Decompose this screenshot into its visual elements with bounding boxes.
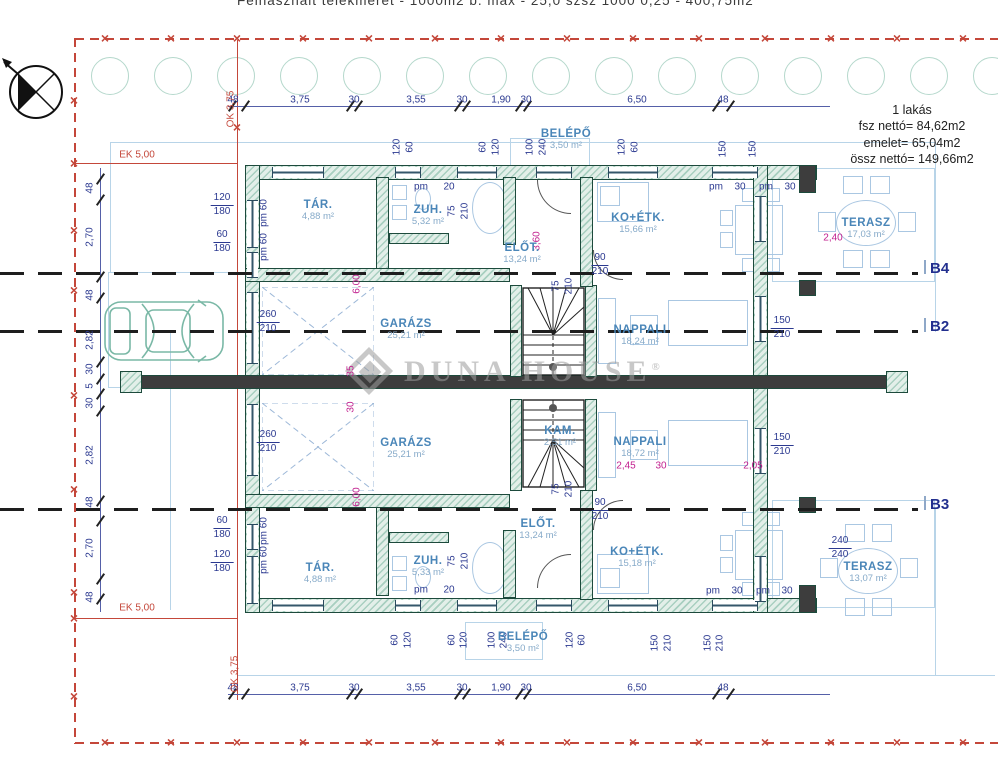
- window: [395, 167, 421, 178]
- boundary-x-mark: ×: [70, 688, 78, 704]
- annotation: 60: [447, 634, 458, 645]
- watermark-brand: Duna House®: [404, 355, 665, 389]
- annotation: 60: [390, 634, 401, 645]
- annotation: 120: [459, 632, 470, 649]
- annotation: pm 60: [259, 199, 270, 227]
- site-boundary-line: [110, 142, 111, 272]
- annotation: pm 60: [259, 233, 270, 261]
- dim-label: 30: [348, 683, 359, 694]
- wall-segment: [799, 165, 816, 193]
- boundary-x-mark: ×: [70, 387, 78, 403]
- annotation: 48: [85, 182, 96, 193]
- annotation: 30: [85, 363, 96, 374]
- boundary-x-mark: ×: [629, 30, 637, 46]
- watermark: Duna House®: [348, 350, 665, 394]
- room-label: BELÉPŐ3,50 m²: [498, 631, 548, 655]
- room-label: GARÁZS25,21 m²: [380, 437, 432, 461]
- annotation: 120: [392, 139, 403, 156]
- tree-icon: [91, 57, 129, 95]
- boundary-x-mark: ×: [233, 30, 241, 46]
- boundary-x-mark: ×: [893, 734, 901, 750]
- furniture: [392, 185, 407, 200]
- site-boundary-line: [935, 142, 936, 332]
- opening-height: 210: [591, 266, 608, 279]
- opening-height: 180: [211, 206, 234, 219]
- annotation: 20: [443, 182, 454, 193]
- furniture: [872, 524, 892, 542]
- room-area: 18,72 m²: [613, 449, 666, 460]
- opening-height: 210: [591, 511, 608, 524]
- setback-line: [75, 618, 237, 619]
- annotation: 100: [525, 139, 536, 156]
- door-swing-arc: [537, 554, 571, 588]
- section-label-b4: B4: [930, 260, 949, 277]
- tree-icon: [469, 57, 507, 95]
- room-label: NAPPALI18,72 m²: [613, 436, 666, 460]
- dim-label: 3,75: [290, 683, 309, 694]
- room-label: TÁR.4,88 m²: [302, 199, 334, 223]
- unit-summary: 1 lakás fsz nettó= 84,62m2 emelet= 65,04…: [828, 102, 996, 167]
- window: [536, 167, 572, 178]
- annotation: 48: [85, 591, 96, 602]
- boundary-x-mark: ×: [299, 30, 307, 46]
- tree-icon: [280, 57, 318, 95]
- opening-height: 210: [257, 323, 280, 336]
- opening-width: 90: [591, 497, 608, 511]
- wall-segment: [376, 177, 389, 277]
- boundary-x-mark: ×: [827, 734, 835, 750]
- annotation: 2,45: [616, 461, 635, 472]
- opening-height: 210: [771, 446, 794, 459]
- boundary-x-mark: ×: [629, 734, 637, 750]
- tree-icon: [784, 57, 822, 95]
- room-label: TERASZ17,03 m²: [842, 217, 891, 241]
- opening-width: 120: [211, 192, 234, 206]
- furniture: [720, 210, 733, 226]
- boundary-x-mark: ×: [299, 734, 307, 750]
- annotation: 30: [731, 586, 742, 597]
- window: [457, 167, 497, 178]
- room-area: 4,88 m²: [304, 575, 336, 586]
- furniture: [720, 557, 733, 573]
- boundary-x-mark: ×: [167, 30, 175, 46]
- boundary-x-mark: ×: [167, 734, 175, 750]
- tree-icon: [595, 57, 633, 95]
- annotation: 120: [617, 139, 628, 156]
- tree-icon: [217, 57, 255, 95]
- boundary-x-mark: ×: [761, 30, 769, 46]
- furniture: [900, 558, 918, 578]
- window: [712, 167, 758, 178]
- section-label-b3: B3: [930, 496, 949, 513]
- annotation: pm: [706, 586, 720, 597]
- window: [272, 167, 324, 178]
- furniture: [600, 568, 620, 588]
- boundary-x-mark: ×: [70, 282, 78, 298]
- annotation: 75: [447, 205, 458, 216]
- opening-dimension: 90210: [591, 252, 608, 278]
- opening-width: 120: [211, 549, 234, 563]
- tree-icon: [910, 57, 948, 95]
- window: [608, 167, 658, 178]
- furniture: [720, 232, 733, 248]
- boundary-x-mark: ×: [70, 155, 78, 171]
- annotation: pm 60: [259, 517, 270, 545]
- opening-dimension: 120180: [211, 192, 234, 218]
- opening-width: 240: [829, 535, 852, 549]
- room-label: TÁR.4,88 m²: [304, 562, 336, 586]
- window: [608, 600, 658, 611]
- furniture: [668, 300, 748, 346]
- section-tick: [924, 260, 926, 274]
- tree-icon: [532, 57, 570, 95]
- opening-dimension: 150210: [771, 315, 794, 341]
- furniture: [720, 535, 733, 551]
- annotation: OK 3,75: [226, 91, 237, 128]
- annotation: 150: [718, 141, 729, 158]
- room-area: 15,66 m²: [611, 225, 665, 236]
- tree-icon: [154, 57, 192, 95]
- annotation: 20: [443, 585, 454, 596]
- room-area: 15,18 m²: [610, 559, 664, 570]
- room-label: KO+ÉTK.15,66 m²: [611, 212, 665, 236]
- wall-segment: [245, 494, 510, 508]
- annotation: 2,05: [743, 461, 762, 472]
- door-swing-arc: [537, 180, 571, 214]
- opening-width: 60: [213, 515, 230, 529]
- annotation: pm: [414, 182, 428, 193]
- wall-segment: [245, 268, 510, 282]
- opening-width: 260: [257, 429, 280, 443]
- annotation: 210: [663, 635, 674, 652]
- room-area: 13,24 m²: [503, 255, 541, 266]
- annotation: 30: [85, 397, 96, 408]
- wall-segment: [389, 532, 449, 543]
- dim-label: 30: [456, 683, 467, 694]
- opening-dimension: 90210: [591, 497, 608, 523]
- tree-icon: [406, 57, 444, 95]
- window: [395, 600, 421, 611]
- tree-icon: [658, 57, 696, 95]
- furniture: [870, 250, 890, 268]
- boundary-x-mark: ×: [70, 92, 78, 108]
- opening-dimension: 120180: [211, 549, 234, 575]
- annotation: 120: [491, 139, 502, 156]
- opening-dimension: 60180: [213, 229, 230, 255]
- annotation: 60: [630, 141, 641, 152]
- furniture: [600, 186, 620, 206]
- dim-label: 1,90: [491, 95, 510, 106]
- dim-label: 1,90: [491, 683, 510, 694]
- boundary-x-mark: ×: [761, 734, 769, 750]
- annotation: 5: [85, 383, 96, 389]
- opening-height: 240: [829, 549, 852, 562]
- annotation: 210: [715, 635, 726, 652]
- room-label: ELŐT.13,24 m²: [519, 518, 557, 542]
- annotation: 48: [85, 289, 96, 300]
- annotation: 210: [460, 553, 471, 570]
- boundary-x-mark: ×: [70, 481, 78, 497]
- annotation: 75: [551, 280, 562, 291]
- opening-height: 210: [257, 443, 280, 456]
- floor-plan-canvas: Felhasznált telekméret - 1000m2 b. max -…: [0, 0, 998, 768]
- annotation: pm 60: [259, 546, 270, 574]
- dim-label: 3,55: [406, 95, 425, 106]
- dim-label: 30: [348, 95, 359, 106]
- boundary-x-mark: ×: [233, 734, 241, 750]
- window: [712, 600, 758, 611]
- opening-width: 90: [591, 252, 608, 266]
- room-area: 13,07 m²: [844, 574, 893, 585]
- room-area: 5,33 m²: [412, 568, 444, 579]
- annotation: OK 3,75: [230, 656, 241, 693]
- furniture: [392, 556, 407, 571]
- section-label-b2: B2: [930, 318, 949, 335]
- opening-dimension: 150210: [771, 432, 794, 458]
- window: [457, 600, 497, 611]
- unit-summary-total: össz nettó= 149,66m2: [828, 151, 996, 167]
- dim-label: 3,75: [290, 95, 309, 106]
- wall-segment: [799, 585, 816, 613]
- dim-label: 30: [520, 683, 531, 694]
- annotation: 60: [405, 141, 416, 152]
- room-label: ZUH.5,33 m²: [412, 555, 444, 579]
- dim-label: 6,50: [627, 683, 646, 694]
- opening-height: 210: [771, 329, 794, 342]
- property-line: [75, 742, 998, 744]
- room-area: 18,24 m²: [613, 337, 666, 348]
- annotation: 48: [85, 496, 96, 507]
- annotation: 210: [564, 278, 575, 295]
- room-area: 3,50 m²: [498, 644, 548, 655]
- boundary-x-mark: ×: [70, 584, 78, 600]
- annotation: 100: [487, 632, 498, 649]
- boundary-x-mark: ×: [695, 734, 703, 750]
- annotation: 60: [478, 141, 489, 152]
- boundary-x-mark: ×: [365, 734, 373, 750]
- boundary-x-mark: ×: [563, 30, 571, 46]
- boundary-x-mark: ×: [563, 734, 571, 750]
- dim-label: 48: [717, 683, 728, 694]
- opening-height: 180: [213, 529, 230, 542]
- opening-height: 180: [213, 243, 230, 256]
- boundary-x-mark: ×: [70, 222, 78, 238]
- boundary-x-mark: ×: [101, 30, 109, 46]
- opening-width: 150: [771, 315, 794, 329]
- annotation: 30: [655, 461, 666, 472]
- furniture: [818, 212, 836, 232]
- room-area: 25,21 m²: [380, 331, 432, 342]
- room-area: 17,03 m²: [842, 230, 891, 241]
- room-label: ELŐT.13,24 m²: [503, 242, 541, 266]
- annotation: 6,00: [352, 487, 363, 506]
- window: [272, 600, 324, 611]
- window: [755, 196, 766, 242]
- annotation: EK 5,00: [119, 603, 155, 614]
- annotation: 35: [346, 365, 357, 376]
- furniture: [898, 212, 916, 232]
- boundary-x-mark: ×: [70, 610, 78, 626]
- boundary-x-mark: ×: [365, 30, 373, 46]
- room-area: 2,51 m²: [544, 438, 576, 449]
- window: [247, 200, 258, 248]
- annotation: 210: [564, 481, 575, 498]
- room-label: KAM.2,51 m²: [544, 425, 576, 449]
- annotation: 75: [447, 555, 458, 566]
- boundary-x-mark: ×: [101, 734, 109, 750]
- room-area: 3,50 m²: [541, 141, 591, 152]
- wall-segment: [389, 233, 449, 244]
- furniture: [820, 558, 838, 578]
- opening-dimension: 60180: [213, 515, 230, 541]
- site-parameters-text: Felhasznált telekméret - 1000m2 b. max -…: [237, 0, 754, 8]
- opening-height: 180: [211, 563, 234, 576]
- annotation: 2,82: [85, 445, 96, 464]
- boundary-x-mark: ×: [959, 30, 967, 46]
- unit-summary-upper: emelet= 65,04m2: [828, 135, 996, 151]
- boundary-x-mark: ×: [959, 734, 967, 750]
- opening-width: 60: [213, 229, 230, 243]
- room-label: NAPPALI18,24 m²: [613, 324, 666, 348]
- furniture: [392, 205, 407, 220]
- annotation: 2,70: [85, 227, 96, 246]
- setback-line: [75, 163, 237, 164]
- setback-line: [237, 40, 238, 700]
- dim-label: 3,55: [406, 683, 425, 694]
- unit-summary-title: 1 lakás: [828, 102, 996, 118]
- dim-label: 30: [456, 95, 467, 106]
- furniture: [843, 250, 863, 268]
- annotation: 30: [781, 586, 792, 597]
- dim-label: 6,50: [627, 95, 646, 106]
- furniture: [392, 576, 407, 591]
- wall-segment: [503, 530, 516, 598]
- annotation: 60: [577, 634, 588, 645]
- dim-label: 30: [520, 95, 531, 106]
- tree-icon: [973, 57, 998, 95]
- wall-segment: [799, 280, 816, 296]
- boundary-x-mark: ×: [431, 734, 439, 750]
- dim-label: 48: [717, 95, 728, 106]
- annotation: EK 5,00: [119, 150, 155, 161]
- room-area: 4,88 m²: [302, 212, 334, 223]
- section-line-b3: [0, 508, 918, 511]
- annotation: pm: [709, 182, 723, 193]
- furniture: [668, 420, 748, 466]
- window: [247, 556, 258, 604]
- boundary-x-mark: ×: [497, 734, 505, 750]
- boundary-x-mark: ×: [827, 30, 835, 46]
- furniture: [872, 598, 892, 616]
- dimension-line: [228, 694, 830, 695]
- annotation: 210: [460, 203, 471, 220]
- room-label: ZUH.5,32 m²: [412, 204, 444, 228]
- annotation: 120: [565, 632, 576, 649]
- opening-width: 150: [771, 432, 794, 446]
- room-label: BELÉPŐ3,50 m²: [541, 128, 591, 152]
- unit-summary-ground: fsz nettó= 84,62m2: [828, 118, 996, 134]
- wall-segment: [886, 371, 908, 393]
- opening-dimension: 240240: [829, 535, 852, 561]
- window: [536, 600, 572, 611]
- site-boundary-line: [238, 675, 995, 676]
- tree-icon: [847, 57, 885, 95]
- opening-dimension: 260210: [257, 309, 280, 335]
- annotation: 30: [346, 401, 357, 412]
- boundary-x-mark: ×: [893, 30, 901, 46]
- section-line-b4: [0, 272, 918, 275]
- furniture: [870, 176, 890, 194]
- room-label: KO+ÉTK.15,18 m²: [610, 546, 664, 570]
- wall-segment: [510, 399, 522, 491]
- opening-dimension: 260210: [257, 429, 280, 455]
- annotation: 30: [734, 182, 745, 193]
- section-tick: [924, 496, 926, 510]
- annotation: 6,00: [352, 274, 363, 293]
- furniture: [843, 176, 863, 194]
- boundary-x-mark: ×: [695, 30, 703, 46]
- room-label: TERASZ13,07 m²: [844, 561, 893, 585]
- window: [755, 296, 766, 342]
- window: [247, 524, 258, 550]
- tree-icon: [721, 57, 759, 95]
- wall-segment: [376, 496, 389, 596]
- annotation: 2,82: [85, 330, 96, 349]
- site-boundary-line: [935, 508, 936, 676]
- dimension-line: [228, 106, 830, 107]
- tree-icon: [343, 57, 381, 95]
- annotation: 150: [650, 635, 661, 652]
- annotation: 75: [551, 483, 562, 494]
- wall-segment: [585, 399, 597, 491]
- annotation: pm: [759, 182, 773, 193]
- annotation: 2,40: [823, 233, 842, 244]
- annotation: 30: [784, 182, 795, 193]
- room-area: 13,24 m²: [519, 531, 557, 542]
- furniture: [845, 598, 865, 616]
- boundary-x-mark: ×: [497, 30, 505, 46]
- annotation: pm: [414, 585, 428, 596]
- wall-segment: [503, 177, 516, 245]
- opening-width: 260: [257, 309, 280, 323]
- room-area: 25,21 m²: [380, 450, 432, 461]
- annotation: 120: [403, 632, 414, 649]
- room-area: 5,32 m²: [412, 217, 444, 228]
- room-label: GARÁZS25,21 m²: [380, 318, 432, 342]
- annotation: 2,70: [85, 538, 96, 557]
- annotation: 150: [703, 635, 714, 652]
- property-line: [75, 38, 998, 40]
- wall-segment: [120, 371, 142, 393]
- boundary-x-mark: ×: [431, 30, 439, 46]
- annotation: pm: [756, 586, 770, 597]
- annotation: 150: [748, 141, 759, 158]
- section-tick: [924, 318, 926, 332]
- north-arrow-icon: [2, 58, 66, 122]
